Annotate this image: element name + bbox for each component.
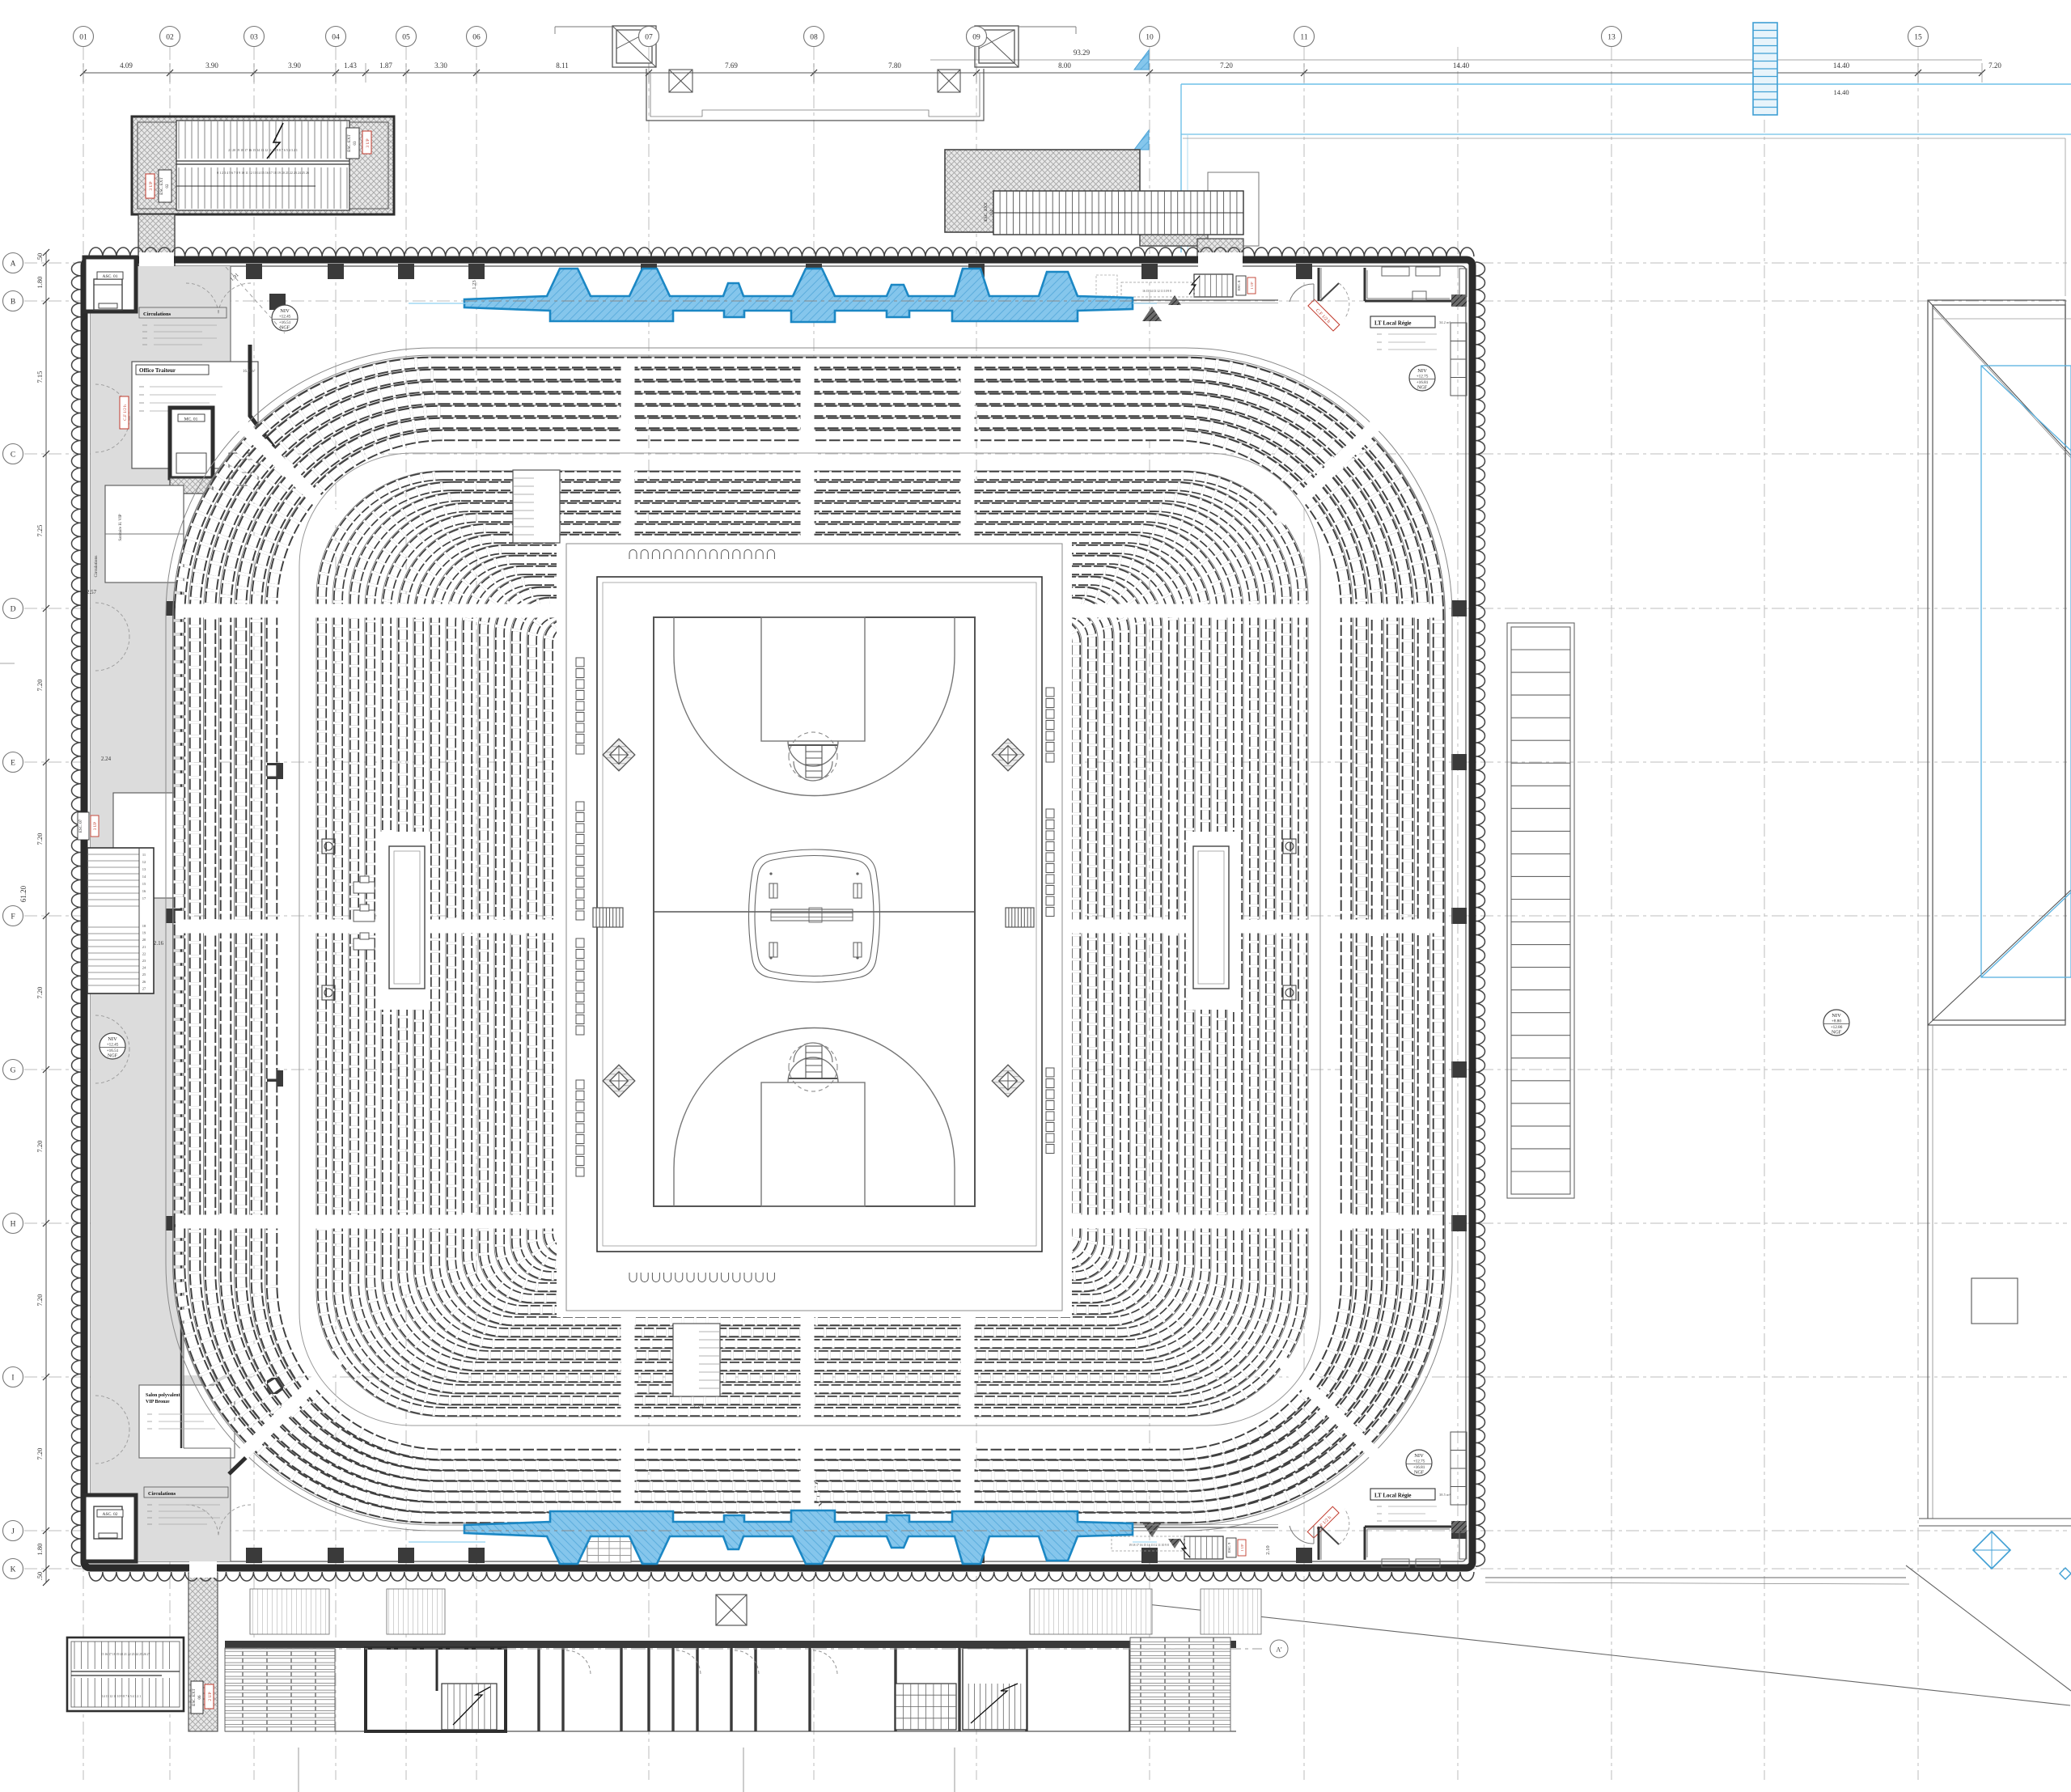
- svg-text:ASC. 02: ASC. 02: [103, 1512, 118, 1517]
- svg-text:I: I: [11, 1375, 14, 1383]
- svg-text:07: 07: [645, 34, 653, 42]
- svg-text:NIV: NIV: [108, 1036, 117, 1042]
- svg-text:NIV: NIV: [1417, 368, 1427, 374]
- svg-text:4.09: 4.09: [120, 61, 133, 70]
- svg-text:ESC. EXT: ESC. EXT: [348, 134, 352, 151]
- svg-text:11: 11: [1300, 34, 1307, 42]
- svg-text:14 13 12 11 10 9 8 7 6 5 4 3 2: 14 13 12 11 10 9 8 7 6 5 4 3 2 1: [102, 1695, 141, 1698]
- svg-text:26: 26: [142, 980, 146, 984]
- svg-text:1 UP: 1 UP: [1250, 282, 1254, 290]
- svg-text:A': A': [1276, 1646, 1282, 1654]
- svg-text:23: 23: [142, 959, 146, 963]
- svg-text:1.87: 1.87: [379, 61, 392, 70]
- svg-text:C.F 1/2 h: C.F 1/2 h: [123, 405, 128, 421]
- svg-text:93.29: 93.29: [1074, 49, 1091, 57]
- svg-text:7.20: 7.20: [36, 833, 44, 845]
- svg-text:15: 15: [1914, 34, 1922, 42]
- svg-text:ESC. 8: ESC. 8: [1237, 280, 1241, 291]
- svg-text:1.43: 1.43: [344, 61, 357, 70]
- svg-text:C: C: [11, 451, 15, 460]
- svg-text:+12.75: +12.75: [1417, 375, 1429, 379]
- svg-text:03: 03: [354, 141, 358, 146]
- svg-text:16.0 m²: 16.0 m²: [243, 369, 256, 374]
- svg-text:+16.81: +16.81: [1417, 380, 1429, 385]
- svg-text:7.20: 7.20: [36, 1141, 44, 1153]
- svg-text:E: E: [11, 760, 15, 768]
- svg-text:08: 08: [810, 34, 818, 42]
- svg-text:7.20: 7.20: [1220, 61, 1233, 70]
- svg-text:3.90: 3.90: [205, 61, 218, 70]
- svg-text:3 UP: 3 UP: [366, 138, 371, 147]
- svg-text:ESC. EXT: ESC. EXT: [160, 177, 164, 194]
- svg-text:3 UP: 3 UP: [94, 822, 98, 830]
- svg-text:+12.45: +12.45: [107, 1043, 119, 1048]
- svg-text:VIP Bronze: VIP Bronze: [146, 1400, 170, 1404]
- svg-text:16: 16: [142, 889, 146, 893]
- svg-text:7.69: 7.69: [725, 61, 738, 70]
- svg-text:7.20: 7.20: [36, 680, 44, 692]
- svg-text:01: 01: [79, 34, 87, 42]
- svg-text:04: 04: [332, 34, 340, 42]
- svg-text:NGF: NGF: [1414, 1471, 1425, 1476]
- svg-text:7.20: 7.20: [1988, 61, 2001, 70]
- svg-text:Sanitaire H. VIP: Sanitaire H. VIP: [119, 514, 123, 540]
- svg-text:3 UP: 3 UP: [149, 181, 154, 190]
- svg-text:06: 06: [198, 1695, 202, 1700]
- svg-text:19: 19: [142, 931, 146, 935]
- svg-text:MC. 01: MC. 01: [184, 417, 198, 422]
- svg-text:+12.75: +12.75: [1413, 1459, 1425, 1464]
- svg-text:16 15 14 13 12 11 10 9 8: 16 15 14 13 12 11 10 9 8: [1142, 290, 1171, 293]
- svg-text:34.2 m²: 34.2 m²: [1439, 320, 1451, 324]
- svg-text:+8.80: +8.80: [1832, 1019, 1841, 1024]
- svg-text:21 20 19 18 17 16 15 14 13 12: 21 20 19 18 17 16 15 14 13 12 11 10 9 8 …: [228, 148, 298, 152]
- svg-text:7.20: 7.20: [36, 1448, 44, 1460]
- svg-text:+12.45: +12.45: [279, 315, 291, 320]
- svg-text:14.40: 14.40: [1833, 88, 1849, 96]
- svg-text:8.00: 8.00: [1058, 61, 1071, 70]
- svg-text:7.20: 7.20: [36, 987, 44, 999]
- svg-text:2.57: 2.57: [87, 589, 97, 595]
- svg-text:14: 14: [142, 875, 146, 879]
- svg-text:J: J: [11, 1528, 15, 1536]
- svg-text:61.20: 61.20: [19, 885, 28, 902]
- svg-text:ESC. EXT: ESC. EXT: [193, 1688, 197, 1705]
- svg-text:NIV: NIV: [1832, 1013, 1841, 1019]
- svg-text:NGF: NGF: [108, 1054, 118, 1059]
- svg-text:Office Traiteur: Office Traiteur: [139, 367, 176, 374]
- svg-text:22: 22: [142, 951, 146, 955]
- svg-text:20: 20: [142, 938, 146, 942]
- svg-text:14.40: 14.40: [1833, 61, 1850, 70]
- svg-text:2.10: 2.10: [1265, 1545, 1271, 1554]
- svg-text:NIV: NIV: [1414, 1453, 1424, 1459]
- svg-text:2.16: 2.16: [154, 940, 164, 947]
- svg-text:F: F: [11, 913, 15, 921]
- svg-text:ESC. EXT: ESC. EXT: [984, 202, 989, 222]
- svg-text:ASC. 01: ASC. 01: [103, 274, 118, 279]
- svg-text:19 18 17 16 15 14 13 12 11 10: 19 18 17 16 15 14 13 12 11 10 9 8: [1129, 1544, 1168, 1547]
- svg-text:D: D: [11, 606, 16, 614]
- svg-text:7.20: 7.20: [36, 1294, 44, 1307]
- svg-text:0 1 2 3 4 5 6 7 8 9 10 11 12 1: 0 1 2 3 4 5 6 7 8 9 10 11 12 13 14 15 16…: [217, 171, 309, 175]
- svg-text:LT Local Régie: LT Local Régie: [1374, 1493, 1412, 1499]
- svg-text:Circulations: Circulations: [143, 311, 172, 317]
- svg-text:Circulations: Circulations: [148, 1491, 176, 1497]
- svg-text:7.15: 7.15: [36, 371, 44, 383]
- svg-text:1 UP: 1 UP: [1240, 1544, 1244, 1552]
- svg-text:ESC. 07: ESC. 07: [79, 819, 83, 832]
- svg-text:NGF: NGF: [1832, 1031, 1842, 1036]
- svg-text:24: 24: [142, 966, 146, 970]
- svg-text:17: 17: [142, 896, 146, 900]
- svg-text:09: 09: [972, 34, 980, 42]
- svg-text:11: 11: [142, 853, 146, 857]
- svg-text:2 UP: 2 UP: [208, 1692, 213, 1701]
- svg-text:.50: .50: [36, 1572, 44, 1581]
- svg-text:18: 18: [142, 924, 146, 928]
- svg-text:15 16 17 18 19 20 21 22 23 24: 15 16 17 18 19 20 21 22 23 24 25 26 27: [101, 1653, 150, 1656]
- svg-text:13: 13: [1607, 34, 1616, 42]
- svg-text:1.23: 1.23: [472, 280, 477, 289]
- svg-text:02: 02: [166, 34, 174, 42]
- svg-text:+16.81: +16.81: [1413, 1465, 1425, 1470]
- svg-text:7.80: 7.80: [888, 61, 901, 70]
- svg-text:H: H: [11, 1221, 16, 1229]
- svg-text:Circulations: Circulations: [94, 556, 99, 578]
- svg-text:NIV: NIV: [280, 308, 290, 314]
- svg-text:38.5 m²: 38.5 m²: [1439, 1493, 1451, 1497]
- svg-text:G: G: [11, 1067, 16, 1075]
- svg-text:1.80: 1.80: [36, 277, 44, 289]
- svg-text:B: B: [11, 299, 15, 307]
- svg-text:ESC. 9: ESC. 9: [1227, 1542, 1231, 1553]
- svg-text:21: 21: [142, 945, 146, 949]
- svg-text:8.11: 8.11: [556, 61, 568, 70]
- svg-text:2.24: 2.24: [101, 756, 112, 762]
- svg-text:LT Local Régie: LT Local Régie: [1374, 320, 1412, 327]
- svg-text:15: 15: [142, 882, 146, 886]
- svg-text:25: 25: [142, 972, 146, 976]
- svg-text:.50: .50: [36, 253, 44, 262]
- svg-text:3.30: 3.30: [434, 61, 447, 70]
- svg-text:27: 27: [142, 986, 146, 990]
- svg-text:12: 12: [142, 860, 146, 864]
- svg-text:3.90: 3.90: [288, 61, 301, 70]
- svg-text:+16.51: +16.51: [107, 1049, 119, 1053]
- svg-text:03: 03: [250, 34, 258, 42]
- svg-text:A: A: [11, 261, 16, 269]
- svg-text:7.25: 7.25: [36, 525, 44, 537]
- svg-text:K: K: [11, 1566, 16, 1574]
- svg-text:13: 13: [142, 867, 146, 871]
- svg-text:06: 06: [472, 34, 481, 42]
- svg-text:1.80: 1.80: [36, 1544, 44, 1556]
- svg-text:+16.51: +16.51: [279, 320, 291, 325]
- svg-text:NGF: NGF: [1417, 386, 1428, 391]
- svg-text:05: 05: [402, 34, 410, 42]
- svg-text:02: 02: [166, 184, 170, 189]
- svg-text:14.40: 14.40: [1453, 61, 1470, 70]
- svg-text:Salon polyvalent: Salon polyvalent: [146, 1393, 180, 1398]
- svg-text:04: 04: [989, 210, 994, 214]
- svg-text:10: 10: [1146, 34, 1154, 42]
- svg-text:+12.86: +12.86: [1831, 1025, 1843, 1030]
